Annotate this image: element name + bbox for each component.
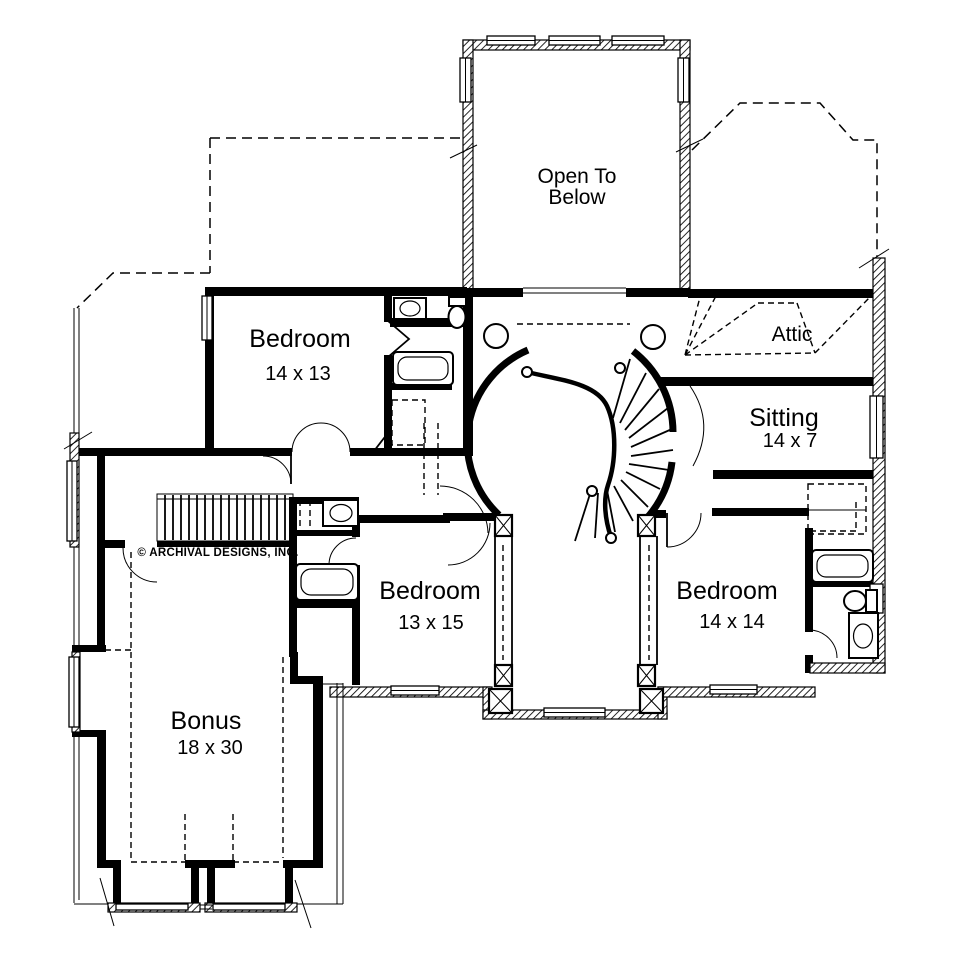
open-to-below-label-line2: Below [548,186,606,209]
sink-icon [323,500,358,526]
sink-icon [849,613,878,658]
niche-icon [641,325,665,349]
open-to-below-label-line1: Open To [537,165,616,188]
bedroom-13x15-dims: 13 x 15 [398,612,464,634]
newel-post [522,367,532,377]
bedroom-14x13-dims: 14 x 13 [265,363,331,385]
niche-icon [484,324,508,348]
newel-post [587,486,597,496]
bathtub-icon [812,550,873,582]
bedroom-14x13-label: Bedroom [249,325,350,353]
bedroom-14x14-label: Bedroom [676,577,777,605]
bedroom-13x15-label: Bedroom [379,577,480,605]
toilet-icon [844,590,877,612]
floor-plan-drawing: Open To Below [0,0,955,960]
sink-icon [394,298,426,319]
bathtub-icon [393,352,453,385]
floor-plan-page: Open To Below [0,0,955,960]
bonus-label: Bonus [171,707,242,735]
bedroom-14x14-dims: 14 x 14 [699,611,765,633]
sitting-dims: 14 x 7 [763,430,817,452]
bonus-dims: 18 x 30 [177,737,243,759]
bathtub-icon [296,564,358,600]
attic-label: Attic [772,323,813,346]
copyright-text: © ARCHIVAL DESIGNS, INC. [137,547,298,559]
newel-post [615,363,625,373]
newel-post [606,533,616,543]
sitting-label: Sitting [749,404,818,432]
toilet-icon [449,297,467,328]
